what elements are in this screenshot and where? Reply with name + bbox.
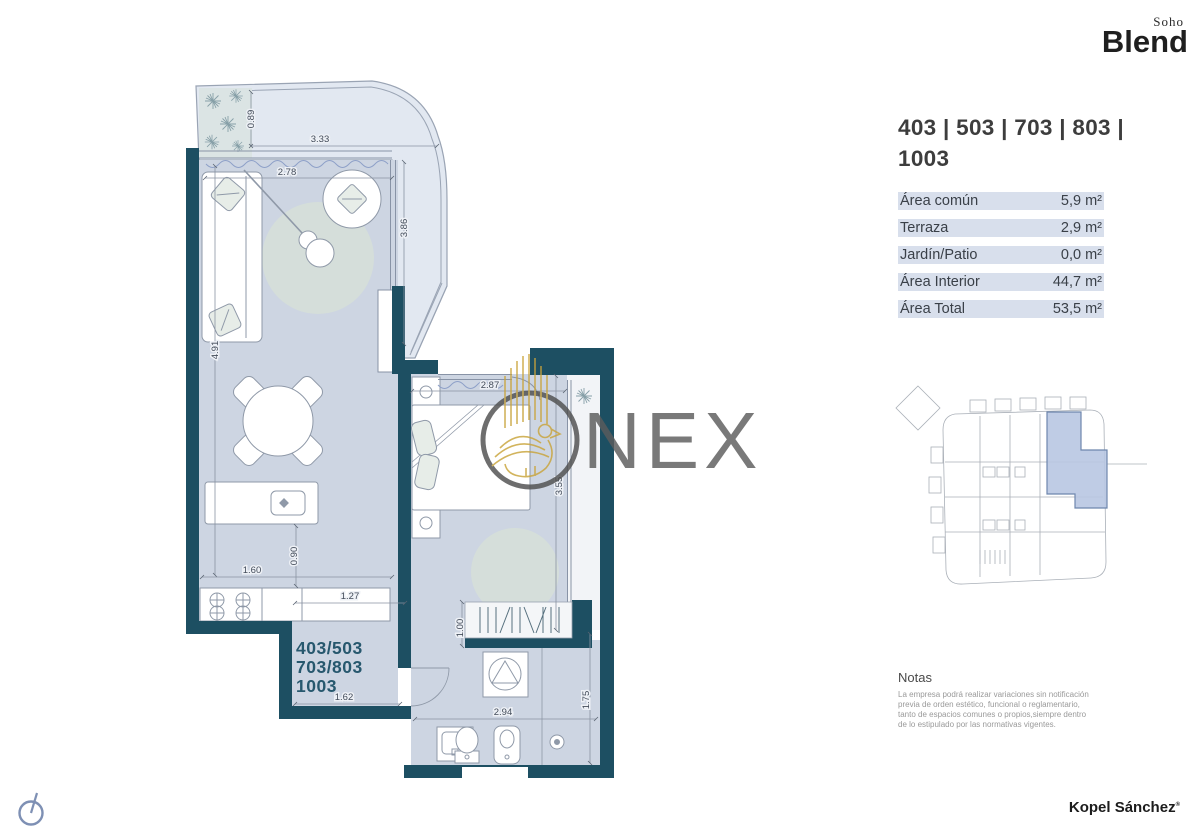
- unit-title: 403 | 503 | 703 | 803 | 1003: [898, 112, 1178, 174]
- kitchen-island: [205, 482, 318, 524]
- developer-logo: Kopel Sánchez®: [1020, 799, 1180, 816]
- area-row: Jardín/Patio 0,0 m²: [898, 246, 1104, 264]
- bath-wall-opening: [462, 767, 528, 778]
- notes-section: Notas La empresa podrá realizar variacio…: [898, 670, 1098, 730]
- north-arrow-icon: [10, 786, 54, 832]
- svg-text:1003: 1003: [296, 676, 337, 696]
- dim-label: 2.78: [278, 167, 297, 178]
- area-row: Área común 5,9 m²: [898, 192, 1104, 210]
- armchair: [323, 170, 381, 228]
- dim-label: 1.60: [243, 565, 262, 576]
- area-label: Área Interior: [900, 273, 980, 291]
- dim-label: 0.89: [246, 110, 257, 129]
- area-label: Área común: [900, 192, 978, 210]
- notes-heading: Notas: [898, 670, 1098, 685]
- area-value: 44,7 m²: [1053, 273, 1102, 291]
- dim-label: 2.94: [494, 707, 513, 718]
- sofa: [202, 172, 262, 342]
- unit-title-line2: 1003: [898, 143, 1178, 174]
- svg-text:403/503: 403/503: [296, 638, 363, 658]
- brand-name: Blend: [1102, 24, 1188, 60]
- dim-label: 2.87: [481, 380, 500, 391]
- watermark-text: NEX: [583, 396, 763, 485]
- dining-table: [231, 374, 326, 469]
- notes-body: La empresa podrá realizar variaciones si…: [898, 690, 1090, 730]
- dim-label: 3.86: [399, 219, 410, 238]
- area-label: Terraza: [900, 219, 948, 237]
- area-value: 2,9 m²: [1061, 219, 1102, 237]
- key-plan-diamond: [896, 386, 940, 430]
- dim-label: 3.33: [311, 134, 330, 145]
- brand-logo: Soho Blend: [1040, 12, 1190, 64]
- area-row: Terraza 2,9 m²: [898, 219, 1104, 237]
- kitchen-counter: [200, 588, 390, 621]
- bidet: [494, 726, 520, 764]
- dim-label: 4.91: [210, 341, 221, 360]
- developer-name: Kopel Sánchez: [1069, 799, 1176, 816]
- key-plan-highlight: [1047, 412, 1107, 508]
- area-row: Área Interior 44,7 m²: [898, 273, 1104, 291]
- area-value: 53,5 m²: [1053, 300, 1102, 318]
- washing-machine: [483, 652, 528, 697]
- area-value: 0,0 m²: [1061, 246, 1102, 264]
- registered-mark: ®: [1176, 802, 1180, 808]
- svg-text:703/803: 703/803: [296, 657, 363, 677]
- area-row: Área Total 53,5 m²: [898, 300, 1104, 318]
- dim-label: 1.00: [455, 619, 466, 638]
- dim-label: 0.90: [289, 547, 300, 566]
- dim-label: 1.75: [581, 691, 592, 710]
- area-table: Área común 5,9 m² Terraza 2,9 m² Jardín/…: [898, 192, 1104, 327]
- unit-title-line1: 403 | 503 | 703 | 803 |: [898, 112, 1178, 143]
- floor-plan: 0.89 3.33 2.78 3.86 4.91 0.90 1.60 1.27 …: [0, 0, 800, 836]
- toilet: [455, 727, 479, 763]
- area-label: Área Total: [900, 300, 965, 318]
- dim-label: 1.62: [335, 692, 354, 703]
- area-label: Jardín/Patio: [900, 246, 977, 264]
- area-value: 5,9 m²: [1061, 192, 1102, 210]
- key-plan: [885, 372, 1185, 624]
- dim-label: 1.27: [341, 591, 360, 602]
